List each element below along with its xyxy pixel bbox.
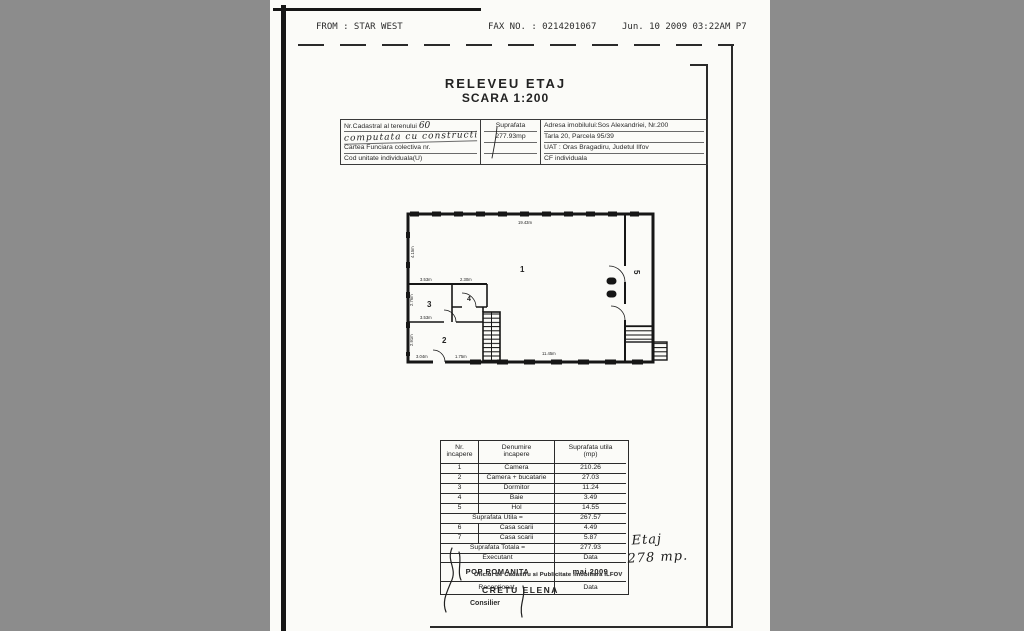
cadastral-left-cell: Nr.Cadastral al terenului 60 computata c…	[341, 120, 481, 164]
dim-bottom-a: 3.04m	[416, 354, 428, 359]
title-line2: SCARA 1:200	[418, 91, 593, 105]
scan-top-line	[273, 8, 481, 11]
subtotal-label: Suprafata Utila =	[441, 514, 555, 524]
header-name-line2: incapere	[503, 452, 529, 459]
row-nr: 3	[441, 484, 479, 494]
area-empty-line	[484, 143, 537, 154]
header-name: Denumire incapere	[479, 441, 555, 464]
area-cell: Suprafata 277.93mp	[481, 120, 541, 164]
received-data-label: Data	[555, 582, 626, 594]
stairs-hatch-right	[625, 326, 653, 342]
document-frame-top	[298, 44, 734, 46]
land-book-label: Cartea Funciara colectiva nr.	[344, 143, 477, 154]
stamp-person-role: Consilier	[470, 600, 500, 607]
dim-top: 19.43m	[518, 220, 532, 225]
document-frame-right-outer	[731, 44, 733, 628]
room-label-4: 4	[467, 296, 471, 303]
dim-room2-top: 3.53m	[420, 315, 432, 320]
fax-datetime: Jun. 10 2009 03:22AM P7	[622, 22, 747, 32]
row-name: Casa scarii	[479, 534, 555, 544]
row-area: 14.55	[555, 504, 626, 514]
header-nr: Nr. incapere	[441, 441, 479, 464]
handwritten-area-note: Etaj 278 mp.	[631, 531, 688, 567]
unit-code-label: Cod unitate individuala(U)	[344, 154, 477, 164]
address-cell: Adresa imobilului:Sos Alexandriei, Nr.20…	[541, 120, 707, 164]
row-area: 11.24	[555, 484, 626, 494]
row-area: 3.49	[555, 494, 626, 504]
dim-bottom: 11.45m	[542, 351, 556, 356]
floor-plan-drawing: 1 2 3 4 5 19.43m 11.45m 4.15m 3.53m 2.30…	[400, 208, 670, 368]
handwritten-note-line1: Etaj	[631, 531, 687, 549]
door-leaf-mark-2	[607, 291, 616, 297]
executant-label: Executant	[441, 554, 555, 563]
room-label-3: 3	[427, 300, 432, 309]
room-label-1: 1	[520, 265, 525, 274]
address-line4: CF individuala	[544, 154, 704, 164]
dim-left: 4.15m	[410, 246, 415, 258]
row-name: Hol	[479, 504, 555, 514]
row-name: Camera	[479, 464, 555, 474]
scan-edge-line	[281, 5, 286, 631]
door-leaf-mark-1	[607, 278, 616, 284]
cadastral-label: Nr.Cadastral al terenului	[344, 123, 417, 130]
stairs-hatch-exterior	[653, 342, 667, 360]
row-name: Baie	[479, 494, 555, 504]
stamp-person-name: CRETU ELENA	[482, 585, 559, 595]
row-area: 4.49	[555, 524, 626, 534]
row-name: Casa scarii	[479, 524, 555, 534]
row-name: Camera + bucatarie	[479, 474, 555, 484]
total-value: 277.93	[555, 544, 626, 554]
room-label-2: 2	[442, 336, 447, 345]
row-nr: 4	[441, 494, 479, 504]
row-area: 5.87	[555, 534, 626, 544]
dim-room3-top: 3.53m	[420, 277, 432, 282]
cadastral-handwritten-number: 60	[419, 121, 430, 131]
header-area: Suprafata utila (mp)	[555, 441, 626, 464]
stamp-office-text: Oficiul de Cadastru si Publicitate Imobi…	[474, 572, 634, 578]
address-line3: UAT : Oras Bragadiru, Judetul Ilfov	[544, 143, 704, 154]
row-nr: 7	[441, 534, 479, 544]
row-nr: 1	[441, 464, 479, 474]
document-title: RELEVEU ETAJ SCARA 1:200	[418, 76, 593, 105]
address-line1: Adresa imobilului:Sos Alexandriei, Nr.20…	[544, 121, 704, 132]
title-line1: RELEVEU ETAJ	[418, 76, 593, 91]
document-frame-bottom	[430, 626, 733, 628]
row-area: 210.26	[555, 464, 626, 474]
row-name: Dormitor	[479, 484, 555, 494]
door-arc-room2	[444, 310, 456, 322]
row-nr: 2	[441, 474, 479, 484]
header-nr-line2: incapere	[446, 452, 472, 459]
row-area: 27.03	[555, 474, 626, 484]
row-nr: 6	[441, 524, 479, 534]
door-arc-corridor-2	[611, 306, 625, 320]
fax-number: FAX NO. : 0214201067	[488, 22, 596, 32]
executant-data-label: Data	[555, 554, 626, 563]
subtotal-value: 267.57	[555, 514, 626, 524]
total-label: Suprafata Totala =	[441, 544, 555, 554]
address-line2: Tarla 20, Parcela 95/39	[544, 132, 704, 143]
cadastral-info-table: Nr.Cadastral al terenului 60 computata c…	[340, 119, 708, 165]
area-value: 277.93mp	[484, 132, 537, 143]
row-nr: 5	[441, 504, 479, 514]
dim-room4-top: 2.30m	[460, 277, 472, 282]
area-empty-line2	[484, 154, 537, 164]
fax-from: FROM : STAR WEST	[316, 22, 403, 32]
header-area-line2: (mp)	[584, 452, 598, 459]
dim-room2-left: 2.91m	[409, 334, 414, 346]
document-frame-hook	[690, 64, 706, 66]
dim-bottom-b: 1.75m	[455, 354, 467, 359]
area-label: Suprafata	[484, 121, 537, 132]
handwritten-note-line2: 278 mp.	[627, 549, 688, 567]
room-label-5: 5	[632, 270, 641, 275]
fax-scan-background: { "fax_header": { "from": "FROM : STAR W…	[0, 0, 1024, 631]
dim-room3-left: 2.76m	[409, 294, 414, 306]
fax-page: FROM : STAR WEST FAX NO. : 0214201067 Ju…	[270, 0, 770, 631]
